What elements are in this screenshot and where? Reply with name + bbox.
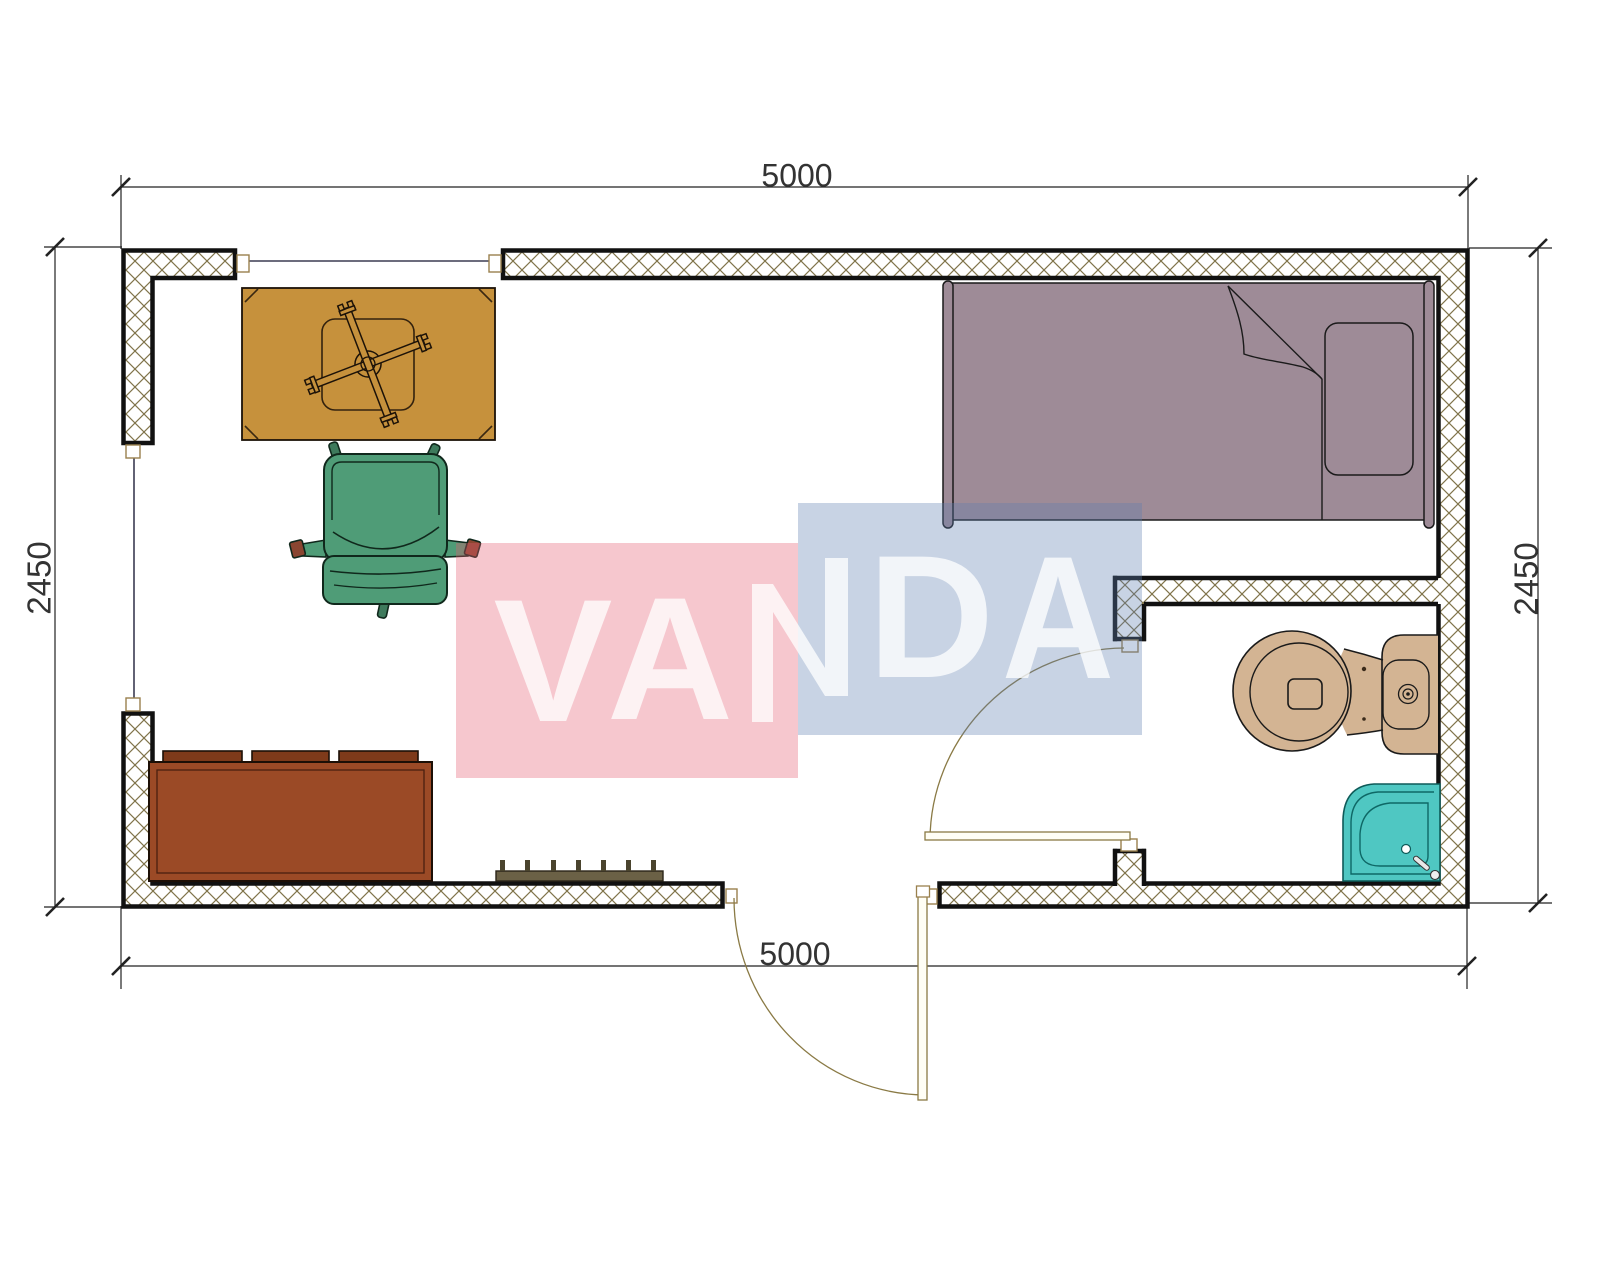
- svg-text:A: A: [1002, 521, 1114, 716]
- svg-text:A: A: [607, 562, 733, 757]
- svg-text:2450: 2450: [21, 541, 58, 614]
- svg-text:2450: 2450: [1508, 542, 1545, 615]
- svg-text:D: D: [868, 520, 994, 715]
- svg-text:V: V: [493, 564, 612, 759]
- svg-text:5000: 5000: [759, 936, 830, 972]
- svg-text:5000: 5000: [761, 158, 832, 194]
